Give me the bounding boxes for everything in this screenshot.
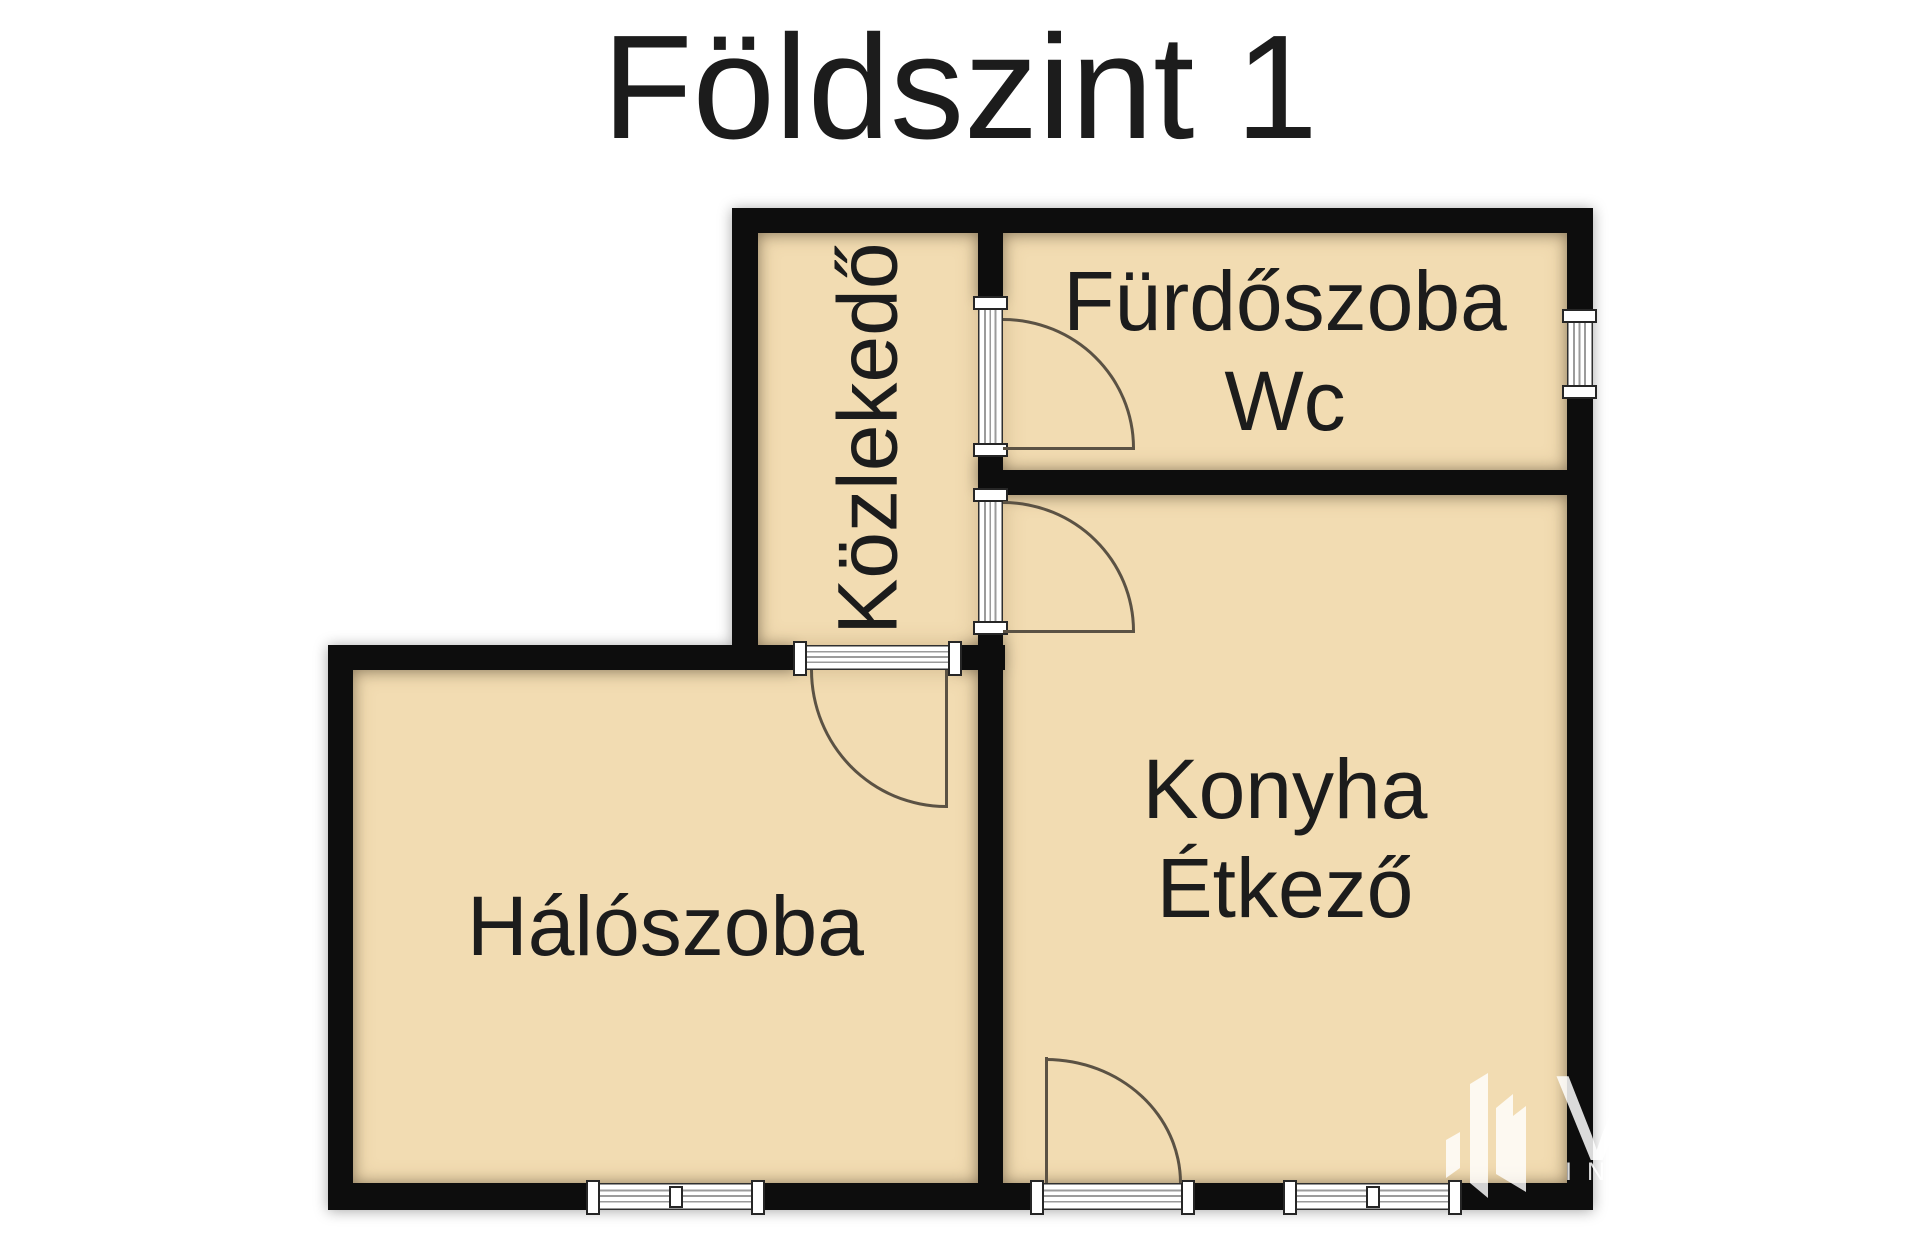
room-label-kitchen-line1: Konyha bbox=[1143, 740, 1428, 839]
window-jamb bbox=[751, 1180, 765, 1215]
watermark-caption: IN bbox=[1565, 1158, 1620, 1187]
window-mullion bbox=[1366, 1186, 1380, 1208]
room-label-bathroom-line2: Wc bbox=[1224, 352, 1345, 451]
room-label-hallway: Közlekedő bbox=[758, 233, 978, 645]
wall-bedroom-left bbox=[328, 645, 353, 1210]
room-label-bedroom-text: Hálószoba bbox=[467, 877, 864, 976]
window-jamb bbox=[586, 1180, 600, 1215]
door-frame-bathroom bbox=[978, 300, 1003, 455]
door-jamb bbox=[1181, 1180, 1195, 1215]
window-jamb bbox=[1562, 385, 1597, 399]
window-jamb bbox=[1562, 309, 1597, 323]
wall-divider-upper-segment bbox=[978, 233, 1003, 300]
wall-divider-lower-segment bbox=[978, 635, 1003, 1183]
floor-plan: Földszint 1 bbox=[0, 0, 1920, 1238]
window-mullion bbox=[669, 1186, 683, 1208]
wall-hallway-left bbox=[732, 208, 758, 670]
room-label-hallway-text: Közlekedő bbox=[818, 243, 917, 635]
wall-divider-middle-segment bbox=[978, 455, 1003, 490]
door-frame-exterior bbox=[1032, 1183, 1195, 1210]
room-label-bathroom: Fürdőszoba Wc bbox=[1003, 233, 1567, 470]
door-jamb bbox=[1030, 1180, 1044, 1215]
wall-bathroom-kitchen bbox=[1003, 470, 1567, 495]
building-logo-icon bbox=[1443, 1062, 1553, 1202]
wall-bedroom-top-left-segment bbox=[328, 645, 795, 670]
door-frame-bedroom bbox=[795, 645, 960, 670]
wall-top bbox=[732, 208, 1593, 233]
room-label-kitchen-line2: Étkező bbox=[1157, 839, 1414, 938]
room-label-bathroom-line1: Fürdőszoba bbox=[1063, 252, 1507, 351]
window-jamb bbox=[1283, 1180, 1297, 1215]
watermark-logo: V IN bbox=[1443, 1062, 1920, 1212]
room-label-bedroom: Hálószoba bbox=[353, 670, 978, 1183]
door-frame-kitchen bbox=[978, 490, 1003, 635]
